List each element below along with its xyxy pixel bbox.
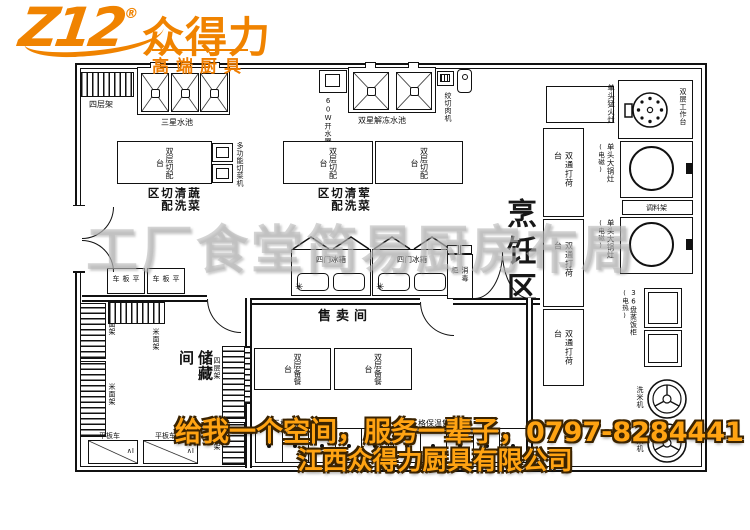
sink-bowl xyxy=(396,72,432,110)
faucet-icon xyxy=(365,62,376,68)
pass-counter-label: 双通打荷台 xyxy=(553,329,575,367)
rice-flour-rack-label: 米面架 xyxy=(108,383,116,406)
sink-drain xyxy=(181,89,190,98)
serving-prep-table-label: 双层备餐台 xyxy=(364,351,383,387)
flat-cart-label: 平板车 xyxy=(99,432,120,440)
pass-counter: 双通打荷台 xyxy=(543,128,584,217)
wok-control-tab xyxy=(686,239,692,250)
cutting-table: 双层切配台 xyxy=(117,141,212,184)
burner-icon xyxy=(624,86,670,134)
pass-counter: 双通打荷台 xyxy=(543,309,584,386)
sink-drain xyxy=(367,87,376,96)
freeze-symbol-icon: ✳ xyxy=(295,282,303,294)
flat-cart-bottom: ∧I xyxy=(88,440,138,464)
cart-mark: ∧I xyxy=(127,447,134,455)
meat-grinder-box xyxy=(437,71,454,86)
watermark-text: 工厂食堂简易厨房布局 xyxy=(86,208,636,283)
sales-room-wall-top xyxy=(245,298,420,305)
cutting-table-label: 双层切配台 xyxy=(319,145,338,181)
serving-prep-table: 双层备餐台 xyxy=(334,348,412,390)
serving-prep-table-label: 双层备餐台 xyxy=(283,351,302,387)
tier-shelf-label: 四层架 xyxy=(89,100,113,109)
veg-cutter-label: 多功能切菜机 xyxy=(236,142,244,187)
cabinet-door xyxy=(648,292,678,324)
rice-flour-rack-label: 米面架 xyxy=(152,328,160,351)
brand-logo: Z12® 众得力 高端厨具 xyxy=(14,2,274,72)
veg-cutter-box xyxy=(212,164,233,183)
tier-shelf-topleft xyxy=(80,72,134,97)
freeze-symbol-icon: ✳ xyxy=(376,282,384,294)
rice-steamer-cabinet xyxy=(644,330,682,367)
wok-control-tab xyxy=(686,163,692,174)
corner-counter xyxy=(546,86,614,123)
pass-counter-label: 双通打荷台 xyxy=(553,151,575,195)
rice-steamer-label: (电热) 36盘蒸饭柜 xyxy=(620,289,638,336)
rice-steamer-note: (电热) xyxy=(620,289,627,336)
wok-stove-note: (电磁) xyxy=(596,143,603,183)
spice-rack-label: 调料架 xyxy=(646,204,667,212)
veg-cutter-detail xyxy=(216,147,229,158)
water-boiler-label: 60W开水器 xyxy=(324,97,332,145)
triple-sink-label: 三星水池 xyxy=(161,118,193,127)
sink-drain xyxy=(210,89,219,98)
rice-flour-rack xyxy=(108,302,165,324)
entrance-jamb-top xyxy=(73,205,85,207)
rice-steamer-name: 36盘蒸饭柜 xyxy=(629,289,637,336)
sink-bowl xyxy=(353,72,389,110)
flat-cart-label: 平板车 xyxy=(155,432,176,440)
footer-company: 江西众得力厨具有限公司 xyxy=(270,441,600,477)
storage-wall-top xyxy=(82,295,207,302)
kitchen-floorplan-poster: Z12® 众得力 高端厨具 四层架 三星水池 60W开水器 双星解冻水池 绞切肉… xyxy=(0,0,750,530)
rice-steamer-cabinet xyxy=(644,288,682,328)
sink-bowl xyxy=(141,73,169,112)
grinder-dot xyxy=(462,74,468,80)
wok-stove-label: (电磁) 单头大锅灶 xyxy=(596,143,614,183)
rice-flour-rack xyxy=(80,303,106,359)
rice-flour-rack xyxy=(80,361,106,437)
cutting-table-label: 双层切配台 xyxy=(410,145,429,181)
cutting-table-label: 双层切配台 xyxy=(155,145,174,181)
veg-cutter-detail xyxy=(216,168,229,179)
cutting-table: 双层切配台 xyxy=(375,141,463,184)
sink-drain xyxy=(151,89,160,98)
wok-burner-icon xyxy=(629,146,674,191)
fierce-stove-label: 单头猛火灶 xyxy=(606,84,615,124)
double-sink-label: 双星解冻水池 xyxy=(358,116,406,125)
logo-tagline: 高端厨具 xyxy=(152,49,248,77)
rice-washer-label: 洗米机 xyxy=(636,386,644,409)
grinder-grid xyxy=(440,74,450,82)
work-table-label: 双层工作台 xyxy=(679,88,687,126)
sales-room-label: 售卖间 xyxy=(318,310,372,325)
veg-cutter-box xyxy=(212,143,233,162)
meat-grinder-body xyxy=(457,69,472,93)
sink-bowl xyxy=(171,73,199,112)
cabinet-door xyxy=(648,334,678,363)
tier-shelf xyxy=(222,346,245,419)
meat-grinder-label: 绞切肉机 xyxy=(444,92,452,122)
sink-bowl xyxy=(200,73,228,112)
faucet-icon xyxy=(408,62,419,68)
wok-stove-name: 单头大锅灶 xyxy=(605,143,614,183)
serving-prep-table: 双层备餐台 xyxy=(254,348,331,390)
water-boiler-panel xyxy=(325,74,340,87)
tier-shelf-label: 四层架 xyxy=(213,357,221,380)
cutting-table: 双层切配台 xyxy=(283,141,373,184)
sink-drain xyxy=(410,87,419,96)
storage-room-label: 储藏间 xyxy=(176,350,214,394)
